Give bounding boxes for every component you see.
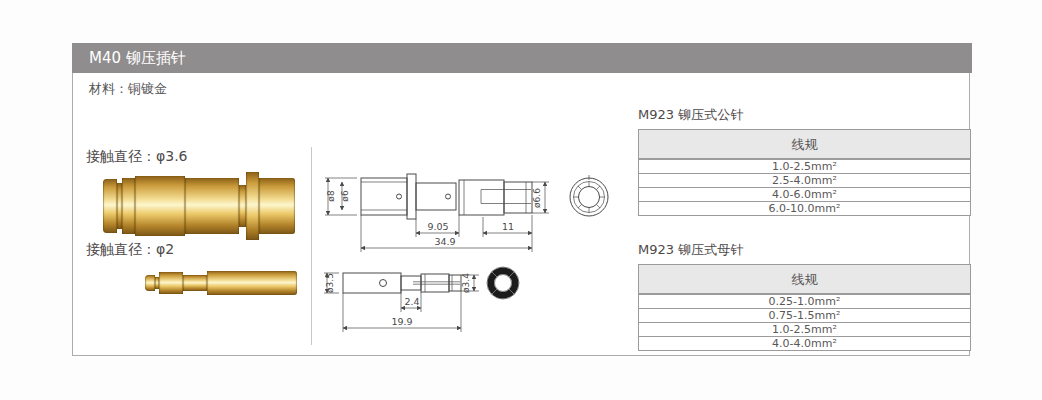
dim-label-outer-diameter: ø8 bbox=[326, 190, 336, 202]
table-row: 0.75-1.5mm² bbox=[639, 308, 970, 322]
pin-segment bbox=[135, 176, 185, 236]
female-pin-table: 线规 0.25-1.0mm² 0.75-1.5mm² 1.0-2.5mm² 4.… bbox=[638, 264, 971, 351]
table-row: 1.0-2.5mm² bbox=[639, 159, 970, 173]
male-pin-end-view bbox=[570, 175, 608, 216]
pin-segment bbox=[239, 185, 246, 227]
table-row: 1.0-2.5mm² bbox=[639, 322, 970, 336]
male-pin-table: 线规 1.0-2.5mm² 2.5-4.0mm² 4.0-6.0mm² 6.0-… bbox=[638, 129, 971, 216]
column-divider bbox=[311, 147, 312, 345]
female-pin-end-view bbox=[487, 267, 519, 299]
dim-label-body-diameter: ø3.5 bbox=[325, 273, 335, 293]
pin2-photo bbox=[145, 261, 300, 305]
pin-segment bbox=[103, 179, 117, 233]
crimp-barrel-outline bbox=[343, 273, 401, 293]
dim-label-step-length: 2.4 bbox=[404, 296, 419, 307]
table-row: 0.25-1.0mm² bbox=[639, 294, 970, 308]
female-pin-table-title: M923 铆压式母针 bbox=[638, 241, 743, 259]
dim-label-inner-diameter: ø6 bbox=[340, 190, 350, 202]
pin-segment bbox=[259, 178, 295, 234]
pin-segment bbox=[145, 275, 155, 291]
dim-label-tip-diameter: ø3.4 bbox=[461, 273, 471, 293]
male-pin-drawing: ø8 ø6 ø6.6 9.05 11 34.9 bbox=[321, 158, 631, 263]
pin1-diameter-label: 接触直径：φ3.6 bbox=[86, 148, 188, 166]
pin1-photo bbox=[103, 167, 303, 245]
female-pin-drawing: ø3.5 ø3.4 2.4 19.9 bbox=[321, 258, 526, 348]
neck-outline bbox=[401, 276, 421, 290]
inspection-hole bbox=[397, 194, 402, 199]
inspection-hole bbox=[380, 280, 387, 287]
wire-gauge-header: 线规 bbox=[639, 130, 970, 159]
pin-segment bbox=[207, 271, 297, 295]
sleeve-outline bbox=[459, 180, 504, 215]
dim-label-total-length: 19.9 bbox=[391, 316, 412, 327]
pin-segment bbox=[183, 275, 207, 291]
page-title: M40 铆压插针 bbox=[72, 43, 972, 73]
inspection-hole bbox=[446, 194, 451, 199]
table-row: 4.0-4.0mm² bbox=[639, 336, 970, 350]
dim-label-total-length: 34.9 bbox=[434, 236, 455, 247]
male-pin-table-title: M923 铆压式公针 bbox=[638, 106, 743, 124]
dim-label-neck-length: 9.05 bbox=[427, 221, 448, 232]
flange-outline bbox=[407, 174, 416, 219]
contact-tip-outline bbox=[449, 275, 461, 291]
pin2-diameter-label: 接触直径：φ2 bbox=[86, 241, 174, 259]
pin-segment bbox=[246, 172, 259, 240]
contact-tip-outline bbox=[504, 182, 532, 213]
table-row: 2.5-4.0mm² bbox=[639, 173, 970, 187]
table-row: 6.0-10.0mm² bbox=[639, 201, 970, 215]
table-row: 4.0-6.0mm² bbox=[639, 187, 970, 201]
product-panel: M40 铆压插针 材料：铜镀金 接触直径：φ3.6 接触直径：φ2 bbox=[72, 43, 970, 356]
wire-gauge-header: 线规 bbox=[639, 265, 970, 294]
material-label: 材料：铜镀金 bbox=[89, 80, 167, 98]
dim-label-tip-length: 11 bbox=[502, 221, 514, 232]
crimp-barrel-outline bbox=[361, 178, 407, 215]
dim-label-tip-diameter: ø6.6 bbox=[532, 188, 542, 208]
pin-segment bbox=[185, 178, 239, 234]
pin-segment bbox=[122, 178, 135, 234]
pin-segment bbox=[159, 272, 183, 294]
